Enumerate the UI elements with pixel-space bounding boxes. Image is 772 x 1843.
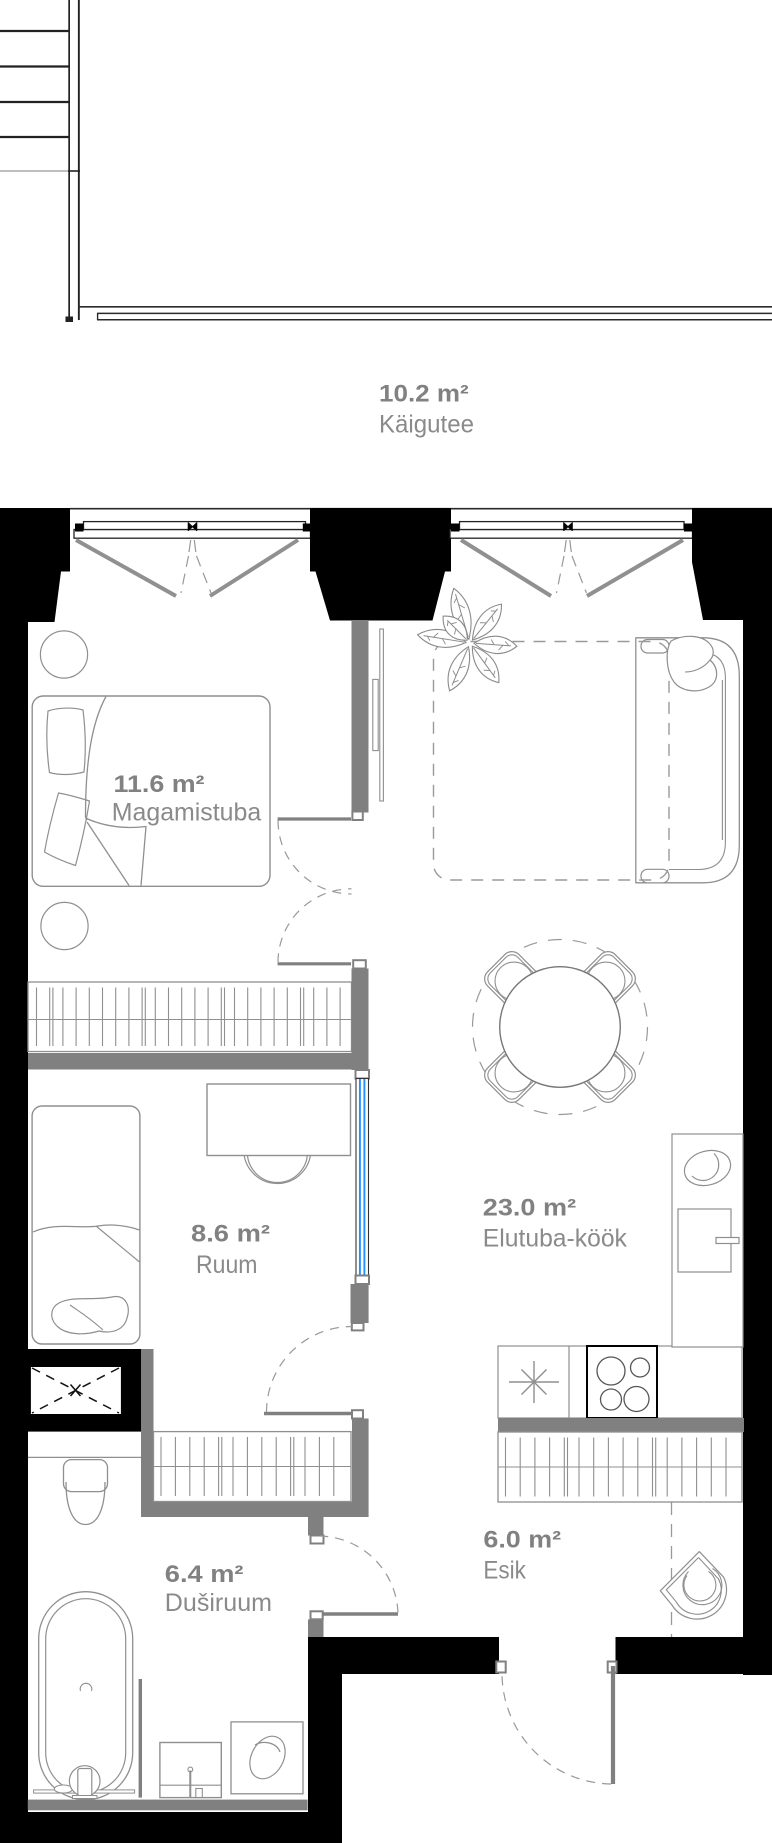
svg-text:8.6 m²: 8.6 m² — [191, 1221, 270, 1248]
svg-text:10.2 m²: 10.2 m² — [379, 381, 469, 408]
svg-text:Magamistuba: Magamistuba — [112, 799, 262, 826]
svg-text:Esik: Esik — [483, 1558, 526, 1585]
svg-text:11.6 m²: 11.6 m² — [114, 771, 205, 798]
svg-text:Ruum: Ruum — [196, 1252, 258, 1279]
svg-text:23.0 m²: 23.0 m² — [483, 1194, 576, 1221]
svg-text:Duširuum: Duširuum — [165, 1590, 272, 1617]
svg-text:Käigutee: Käigutee — [379, 412, 474, 439]
svg-text:6.4 m²: 6.4 m² — [165, 1561, 244, 1588]
svg-text:6.0 m²: 6.0 m² — [483, 1527, 561, 1554]
svg-text:Elutuba-köök: Elutuba-köök — [483, 1225, 628, 1252]
